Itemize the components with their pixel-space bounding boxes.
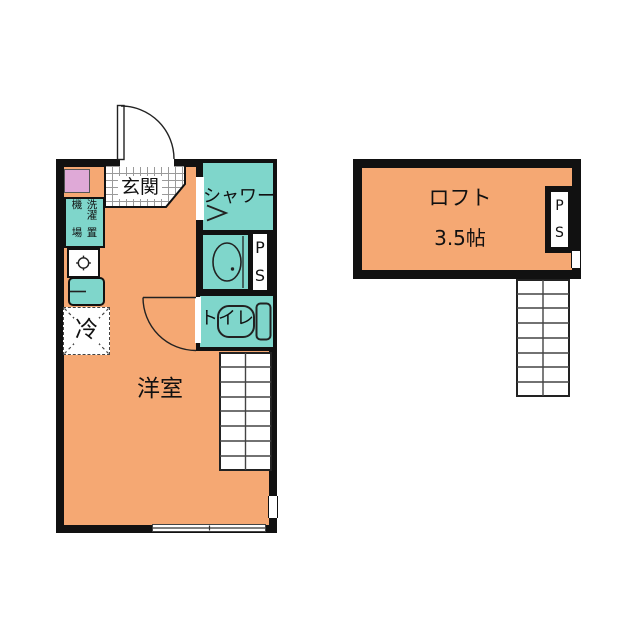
entrance-door-leaf bbox=[118, 106, 125, 160]
entrance-door-swing-icon bbox=[118, 106, 175, 168]
window-right-wall-loft bbox=[571, 251, 581, 268]
stairs-loft bbox=[516, 279, 570, 397]
entrance-door-arc bbox=[121, 106, 174, 159]
window-bottom-wall bbox=[152, 524, 266, 532]
pipe-space-floor1: P S bbox=[251, 232, 269, 292]
fridge-label: 冷 bbox=[63, 307, 110, 355]
western-room-label: 洋室 bbox=[110, 377, 210, 402]
entrance-label-text: 玄関 bbox=[121, 176, 159, 198]
toilet-label: トイレ bbox=[200, 309, 254, 329]
loft-size-label: 3.5帖 bbox=[362, 227, 558, 249]
loft-name-label: ロフト bbox=[362, 187, 558, 210]
fridge-label-text: 冷 bbox=[74, 318, 99, 343]
washbasin-room bbox=[200, 232, 251, 292]
entrance-label: 玄関 bbox=[118, 176, 162, 199]
window-right-wall-floor1 bbox=[268, 496, 278, 518]
washer-label-col-right: 洗濯機 bbox=[70, 199, 100, 227]
closet-box bbox=[64, 169, 90, 193]
stove-box bbox=[67, 248, 100, 278]
washing-machine-box: 洗濯機 置場 bbox=[64, 197, 105, 248]
stairs-floor1 bbox=[219, 352, 272, 471]
loft-room-floor bbox=[362, 168, 572, 270]
kitchen-sink-box bbox=[68, 277, 105, 306]
pipe-space-floor1-p: P bbox=[255, 240, 265, 256]
shower-label: シャワー bbox=[203, 187, 275, 207]
washer-label-col-left: 置場 bbox=[70, 227, 100, 246]
pipe-space-floor1-s: S bbox=[255, 268, 265, 284]
floorplan-canvas: 玄関 シャワー P S トイレ 洗濯機 置場 冷 洋室 ロフト 3.5帖 P S bbox=[0, 0, 640, 640]
